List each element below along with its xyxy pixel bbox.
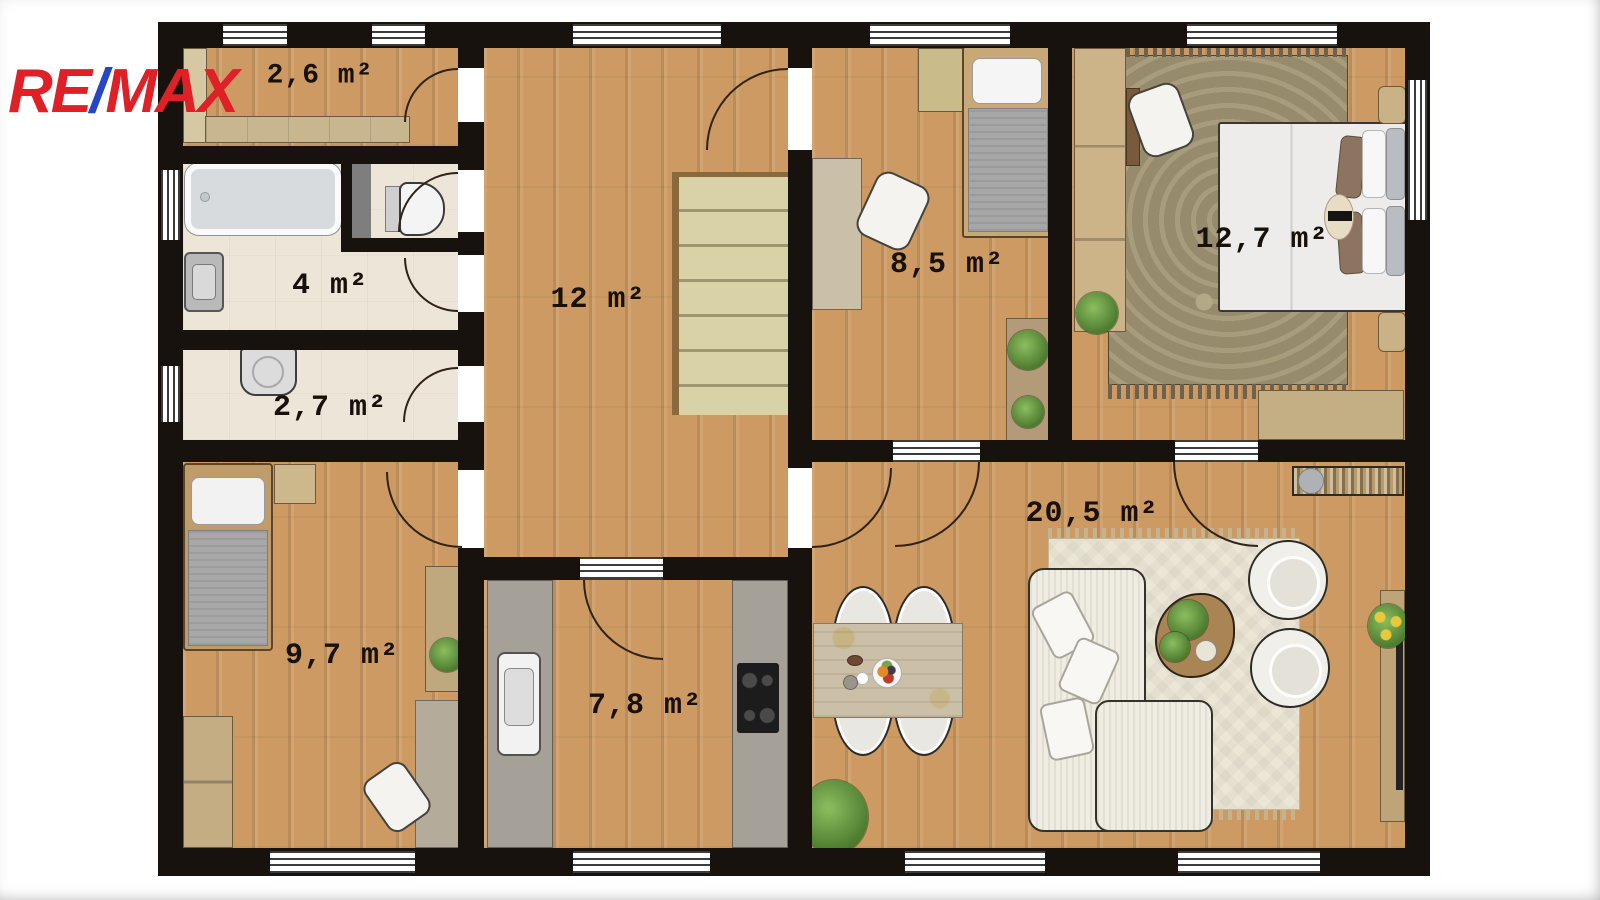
door-small-bedroom-living: [893, 440, 980, 462]
plant-master-bedroom: [1076, 292, 1118, 334]
wall-central-3: [788, 548, 812, 848]
master-pillow-white-2: [1362, 208, 1386, 274]
sideboard-plant: [1298, 468, 1324, 494]
window-left-bathroom: [161, 170, 180, 240]
wall-bedrooms-divider: [1048, 48, 1072, 440]
opening-utility-door: [458, 366, 484, 422]
master-nightstand-bottom: [1378, 312, 1406, 352]
wall-left-column-1: [458, 48, 484, 68]
coffee-table-tray: [1195, 640, 1217, 662]
table-pastry: [847, 655, 863, 666]
wall-central-1: [788, 48, 812, 68]
bathtub-drain: [200, 192, 210, 202]
window-right-master: [1408, 80, 1427, 220]
door-master-bedroom-living: [1175, 440, 1258, 462]
master-cushion-strap: [1328, 211, 1352, 221]
kids-nightstand: [274, 464, 316, 504]
armchair-top: [1248, 540, 1328, 620]
window-top-small-bedroom: [870, 24, 1010, 46]
fruit-bowl: [872, 658, 902, 688]
armchair-bottom: [1250, 628, 1330, 708]
remax-logo-slash: /: [90, 57, 105, 126]
room-area-label-storage: 2,6 m²: [267, 61, 374, 92]
room-area-label-hall: 12 m²: [550, 283, 645, 317]
wall-middle-1: [788, 440, 893, 462]
window-left-utility: [161, 366, 180, 422]
master-bench: [1258, 390, 1404, 440]
wall-hall-kitchen-left: [458, 557, 580, 580]
room-area-label-kids-bedroom: 9,7 m²: [285, 639, 399, 673]
room-area-label-master-bedroom: 12,7 m²: [1195, 223, 1328, 257]
kitchen-sink-basin: [504, 668, 534, 726]
small-bed-blanket: [968, 108, 1048, 232]
wall-middle-3: [1258, 440, 1405, 462]
wall-left-column-4: [458, 312, 484, 366]
wall-left-column-2: [458, 122, 484, 170]
master-wardrobe: [1074, 48, 1126, 332]
window-bottom-kids: [270, 851, 415, 873]
small-bed-pillow: [972, 58, 1042, 104]
kids-bed-blanket: [188, 530, 268, 646]
opening-wc-door: [458, 170, 484, 232]
master-pillow-gray-1: [1386, 128, 1405, 200]
window-bottom-kitchen: [573, 851, 710, 873]
table-bowl: [843, 675, 858, 690]
plant-yellow-flowers: [1368, 604, 1408, 648]
armchair-bottom-seat: [1269, 644, 1322, 699]
remax-logo-re: RE: [8, 57, 90, 126]
floor-plan-page: 2,6 m² 4 m² 2,7 m² 12 m² 8,5 m² 12,7 m² …: [0, 0, 1600, 900]
opening-storage-door: [458, 68, 484, 122]
master-pillow-white-1: [1362, 130, 1386, 198]
remax-logo: RE/MAX: [8, 56, 237, 127]
window-top-master-bedroom: [1187, 24, 1337, 46]
wall-central-2: [788, 150, 812, 468]
kids-bed-pillow: [191, 477, 265, 525]
room-area-label-kitchen: 7,8 m²: [588, 689, 702, 723]
bathroom-sink-basin: [192, 264, 216, 300]
room-area-label-bathroom: 4 m²: [292, 269, 368, 303]
opening-hall-small-bedroom: [788, 68, 812, 150]
room-area-label-living: 20,5 m²: [1025, 497, 1158, 531]
window-top-storage-1: [223, 24, 287, 46]
cooktop: [737, 663, 779, 733]
sofa-chaise: [1095, 700, 1213, 832]
room-area-label-small-bedroom: 8,5 m²: [890, 248, 1004, 282]
master-pillow-gray-2: [1386, 206, 1405, 276]
wall-middle-2: [980, 440, 1175, 462]
armchair-top-seat: [1267, 556, 1320, 611]
wall-utility-kids: [158, 440, 484, 462]
room-area-label-utility: 2,7 m²: [273, 391, 387, 425]
window-top-hall: [573, 24, 721, 46]
plant-small-bedroom-2: [1012, 396, 1044, 428]
kids-wardrobe: [183, 716, 233, 848]
window-top-storage-2: [372, 24, 425, 46]
master-nightstand-top: [1378, 86, 1406, 124]
window-bottom-living-1: [905, 851, 1045, 873]
remax-logo-max: MAX: [105, 57, 237, 126]
wall-bathroom-utility: [183, 330, 458, 350]
plant-coffee-table-2: [1160, 632, 1190, 662]
door-hall-kitchen: [580, 557, 663, 580]
wall-wc-bottom: [341, 238, 458, 252]
opening-hall-living: [788, 468, 812, 548]
opening-bathroom-door: [458, 255, 484, 312]
washing-machine-door: [252, 356, 284, 388]
small-desk: [812, 158, 862, 310]
window-bottom-living-2: [1178, 851, 1320, 873]
wall-hall-kitchen-right: [663, 557, 788, 580]
wall-storage-bathroom: [183, 146, 458, 164]
staircase: [672, 172, 788, 415]
plant-small-bedroom-1: [1008, 330, 1048, 370]
tv-screen: [1396, 640, 1403, 790]
wall-left-column-6: [458, 548, 484, 848]
wall-left-column-3: [458, 232, 484, 255]
